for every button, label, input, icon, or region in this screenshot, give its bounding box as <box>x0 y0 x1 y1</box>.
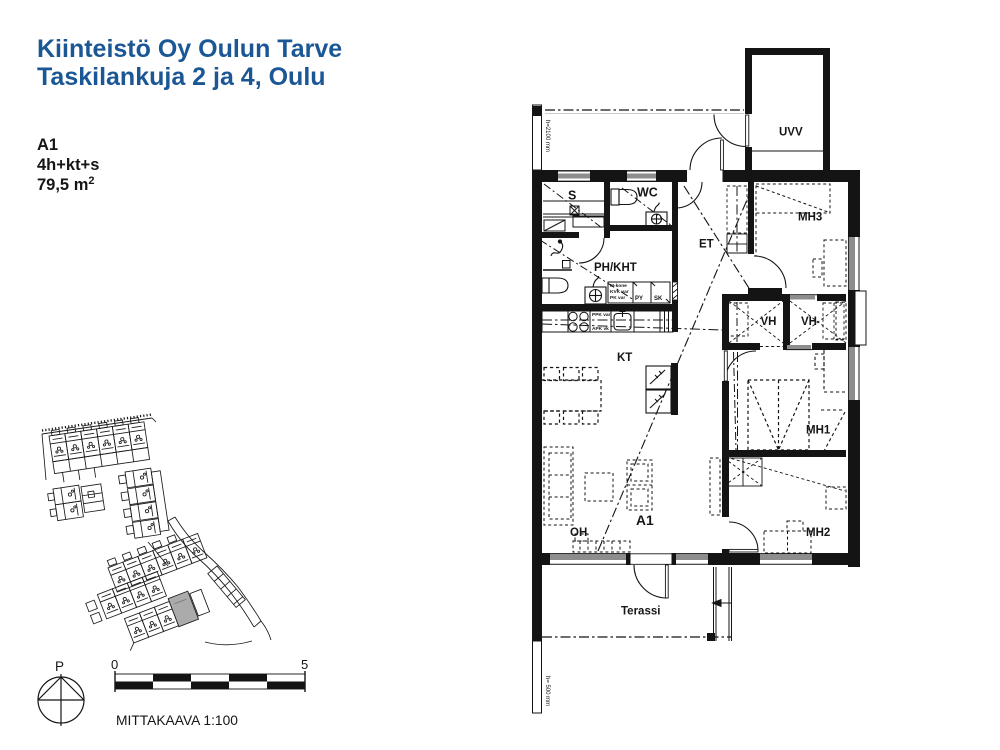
svg-text:VH: VH <box>801 316 817 328</box>
svg-text:Terassi: Terassi <box>621 606 660 618</box>
svg-text:S: S <box>568 189 576 203</box>
svg-text:OH: OH <box>570 527 587 539</box>
svg-text:WC: WC <box>637 186 658 200</box>
svg-text:SK: SK <box>654 296 663 302</box>
svg-text:Kiinteistö Oy Oulun Tarve: Kiinteistö Oy Oulun Tarve <box>37 35 342 63</box>
svg-text:P: P <box>55 659 64 674</box>
svg-text:APK vk: APK vk <box>592 326 609 332</box>
svg-text:MH3: MH3 <box>798 212 822 224</box>
svg-text:KVK var: KVK var <box>610 289 629 295</box>
svg-text:79,5 m2: 79,5 m2 <box>37 175 95 194</box>
svg-text:VH: VH <box>761 316 777 328</box>
svg-text:Taskilankuja 2 ja 4, Oulu: Taskilankuja 2 ja 4, Oulu <box>37 63 326 91</box>
svg-text:ET: ET <box>699 239 714 251</box>
svg-text:KT: KT <box>617 352 632 364</box>
svg-text:UVV: UVV <box>779 127 803 139</box>
svg-text:5: 5 <box>301 657 308 672</box>
svg-text:PY: PY <box>635 296 643 302</box>
svg-text:MITTAKAAVA 1:100: MITTAKAAVA 1:100 <box>116 713 238 728</box>
svg-text:0: 0 <box>111 657 118 672</box>
svg-text:h=2100 mm: h=2100 mm <box>544 120 550 152</box>
svg-text:PPK var: PPK var <box>592 312 611 318</box>
svg-text:M-kone: M-kone <box>610 283 627 289</box>
svg-text:A1: A1 <box>636 513 654 528</box>
svg-text:PK var: PK var <box>610 295 625 301</box>
svg-text:MH1: MH1 <box>806 425 831 437</box>
svg-text:A1: A1 <box>37 136 58 154</box>
svg-text:h= 500 mm: h= 500 mm <box>544 676 550 706</box>
svg-text:PH/KHT: PH/KHT <box>594 262 637 274</box>
svg-text:4h+kt+s: 4h+kt+s <box>37 156 99 174</box>
svg-text:MH2: MH2 <box>806 527 830 539</box>
